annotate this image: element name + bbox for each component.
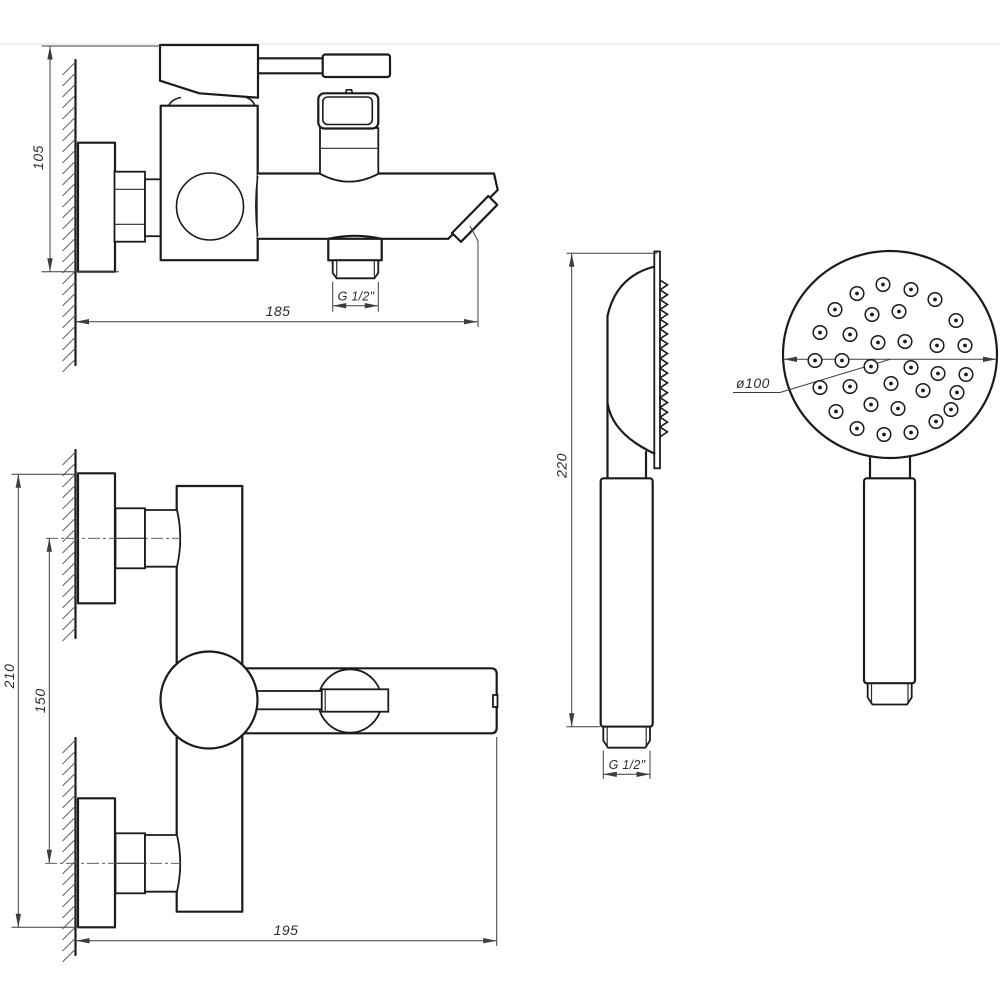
diverter-slider [322, 689, 389, 711]
wall-flange [78, 143, 115, 272]
technical-drawing-page: 105 185 G 1/2" [0, 0, 1000, 1000]
wall-hatching [63, 740, 76, 962]
dim-label-front-length: 195 [274, 922, 299, 938]
faucet-technical-drawing: 105 185 G 1/2" [0, 0, 1000, 1000]
shower-handle [601, 478, 653, 726]
dimension-outlet-thread: G 1/2" [333, 282, 379, 312]
faucet-front-view: 210 150 195 [1, 450, 498, 962]
dim-label-total-height: 210 [1, 664, 17, 690]
outlet-nut [328, 239, 381, 260]
dim-label-outlet-thread: G 1/2" [338, 290, 375, 304]
shower-head-back [608, 267, 654, 478]
mixer-body [161, 106, 258, 261]
dim-label-diameter: ø100 [736, 375, 770, 391]
faucet-side-view: 105 185 G 1/2" [30, 45, 498, 372]
dim-label-shower-thread: G 1/2" [609, 758, 646, 772]
diverter-rod [255, 691, 322, 709]
handle-connector-nut [868, 683, 912, 704]
eccentric-nut [115, 172, 146, 242]
outlet-nipple [333, 260, 379, 278]
wall-hatching [63, 452, 76, 641]
wall-hatching [63, 62, 76, 372]
lever-handle-base [160, 45, 258, 98]
lever-grip [323, 55, 390, 78]
spray-plate [654, 252, 660, 469]
shower-head-bottom-arc [608, 403, 655, 454]
handle-connector-nut [603, 727, 650, 748]
spray-nozzle-teeth [660, 280, 668, 437]
dim-label-centers: 150 [32, 688, 48, 713]
dim-label-shower-length: 220 [554, 453, 570, 479]
dim-label-faucet-length: 185 [266, 303, 291, 319]
connector-pipe [145, 179, 161, 236]
dimension-150: 150 [32, 538, 49, 863]
dim-label-faucet-height: 105 [30, 145, 46, 170]
handle-knob-circle [161, 652, 258, 749]
spout-tip-mark [493, 695, 498, 707]
diverter-stem [320, 128, 378, 182]
handshower-side-view: 220 G 1/2" [554, 252, 668, 780]
shower-handle [864, 478, 915, 683]
handshower-front-view: ø100 [733, 251, 997, 705]
wall-flange-bottom [78, 798, 115, 927]
